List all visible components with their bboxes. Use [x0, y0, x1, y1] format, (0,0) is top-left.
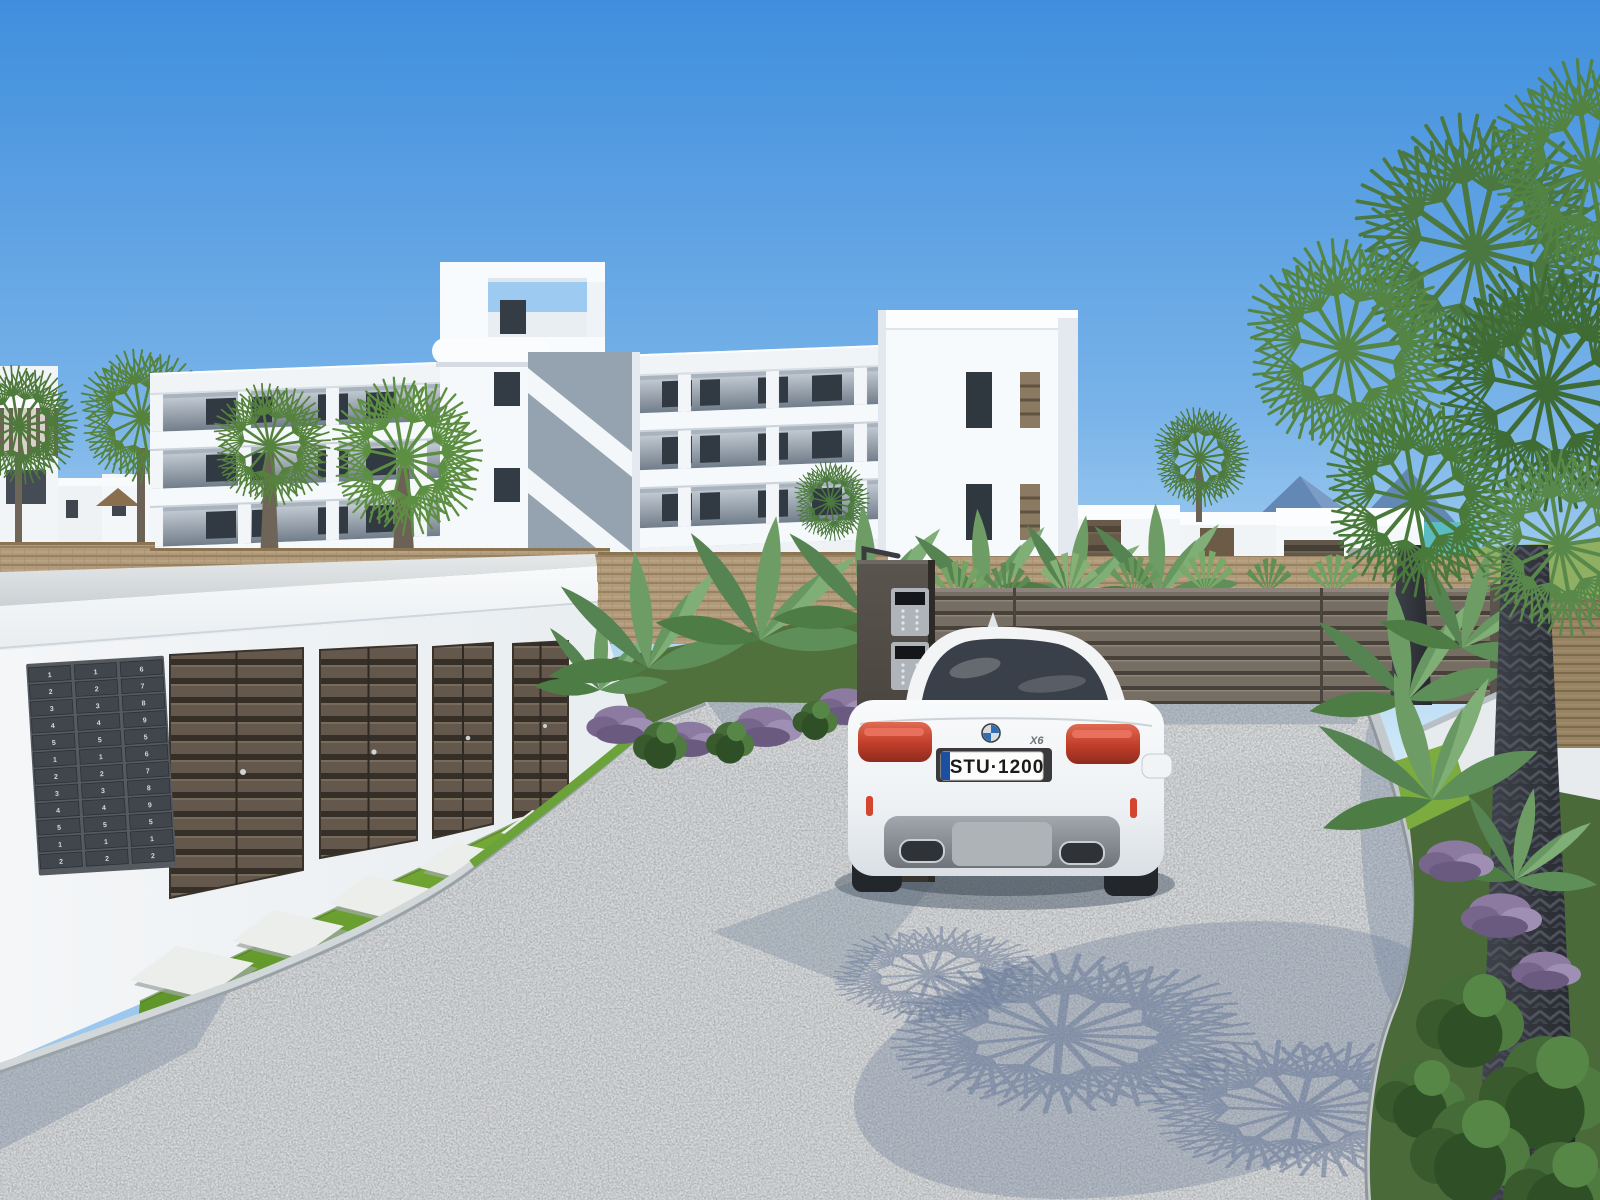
mailbox-panel: 123451234512123451234512678956789512	[26, 656, 177, 876]
mailbox-number: 3	[55, 791, 59, 798]
mailbox-number: 4	[56, 808, 60, 815]
garage-door-2	[320, 645, 417, 858]
mailbox-number: 2	[105, 856, 109, 863]
mailbox-number: 1	[150, 836, 154, 843]
mailbox-number: 1	[99, 754, 103, 761]
mailbox-number: 9	[143, 717, 147, 724]
taillight-left	[858, 722, 932, 762]
mailbox-number: 2	[54, 774, 58, 781]
mailbox-number: 5	[98, 737, 102, 744]
render-scene: 123451234512123451234512678956789512	[0, 0, 1600, 1200]
x6-badge: X6	[1029, 735, 1044, 747]
mailbox-number: 1	[104, 839, 108, 846]
reflector-right	[1130, 798, 1137, 818]
scene-canvas: 123451234512123451234512678956789512	[0, 0, 1600, 1200]
mailbox-number: 5	[144, 734, 148, 741]
exhaust-right	[1060, 842, 1104, 864]
mailbox-number: 6	[139, 666, 143, 673]
mailbox-number: 5	[103, 822, 107, 829]
mailbox-number: 2	[151, 853, 155, 860]
mailbox-number: 3	[50, 706, 54, 713]
tower-portal-window	[500, 300, 526, 334]
mailbox-number: 8	[141, 700, 145, 707]
reflector-left	[866, 796, 873, 816]
mailbox-number: 9	[148, 802, 152, 809]
plate-euroband	[941, 752, 950, 780]
mailbox-number: 7	[140, 683, 144, 690]
mailbox-number: 4	[51, 723, 55, 730]
garage-door-3	[433, 643, 493, 838]
license-plate: STU·1200	[936, 748, 1052, 782]
mailbox-number: 2	[49, 689, 53, 696]
mailbox-number: 4	[102, 805, 106, 812]
plate-text: STU·1200	[950, 757, 1045, 778]
taillight-right	[1066, 724, 1140, 764]
mailbox-number: 5	[149, 819, 153, 826]
mailbox-number: 6	[145, 751, 149, 758]
mailbox-number: 2	[100, 771, 104, 778]
mailbox-number: 7	[146, 768, 150, 775]
mailbox-number: 1	[58, 842, 62, 849]
mailbox-number: 5	[57, 825, 61, 832]
mailbox-number: 2	[59, 859, 63, 866]
bmw-roundel-icon	[982, 724, 1000, 742]
mailbox-number: 3	[101, 788, 105, 795]
side-mirror	[1142, 754, 1172, 778]
garage-door-1	[170, 648, 303, 898]
mailbox-number: 8	[147, 785, 151, 792]
mailbox-number: 1	[53, 757, 57, 764]
mailbox-number: 4	[97, 720, 101, 727]
mailbox-number: 3	[96, 703, 100, 710]
exhaust-left	[900, 840, 944, 862]
mailbox-number: 5	[52, 740, 56, 747]
mailbox-number: 1	[48, 672, 52, 679]
intercom-unit	[891, 588, 929, 636]
mailbox-number: 2	[95, 686, 99, 693]
mailbox-number: 1	[94, 669, 98, 676]
